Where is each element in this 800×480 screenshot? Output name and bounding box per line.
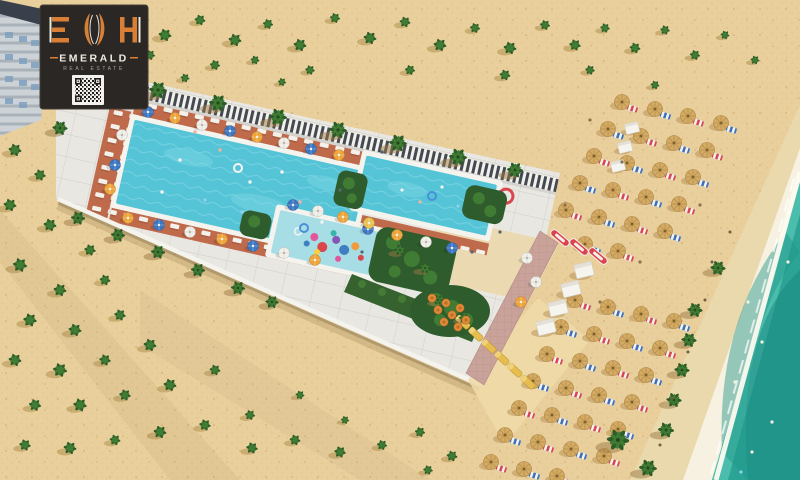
scene-canvas: EMERALD REAL ESTATE [0, 0, 800, 480]
person [770, 420, 773, 423]
brand-name: EMERALD [59, 53, 128, 65]
qr-code-icon [72, 75, 104, 105]
person [698, 203, 701, 206]
person [786, 260, 789, 263]
person [320, 220, 323, 223]
dining-table [448, 311, 456, 319]
brand-subtitle: REAL ESTATE [63, 66, 125, 72]
brand-dash-right [130, 57, 138, 59]
resort-aerial-render: EMERALD REAL ESTATE [0, 0, 800, 480]
person [733, 380, 736, 383]
person [746, 300, 749, 303]
person [711, 261, 714, 264]
person [498, 230, 501, 233]
person [470, 250, 473, 253]
person [456, 204, 459, 207]
person [638, 260, 641, 263]
person [160, 190, 163, 193]
person [659, 444, 662, 447]
dining-table [456, 304, 464, 312]
person [598, 300, 601, 303]
dining-table [454, 323, 462, 331]
person [729, 231, 732, 234]
dining-table [428, 294, 436, 302]
dining-table [440, 318, 448, 326]
person [400, 188, 403, 191]
dining-table [434, 306, 442, 314]
person [440, 185, 443, 188]
person [620, 160, 623, 163]
person [203, 198, 206, 201]
person [280, 170, 283, 173]
person [760, 340, 763, 343]
person [750, 450, 753, 453]
person [298, 200, 301, 203]
person [178, 158, 181, 161]
dining-table [462, 316, 470, 324]
person [380, 150, 383, 153]
person [360, 250, 363, 253]
person [563, 203, 566, 206]
brand-dash-left [50, 57, 58, 59]
person [704, 299, 707, 302]
person [418, 200, 421, 203]
dining-table [442, 299, 450, 307]
person [193, 130, 196, 133]
person [739, 470, 742, 473]
person [671, 397, 674, 400]
person [240, 210, 243, 213]
emerald-logo-card: EMERALD REAL ESTATE [40, 5, 148, 109]
person [218, 148, 221, 151]
person [588, 118, 591, 121]
person [687, 351, 690, 354]
person [338, 188, 341, 191]
person [248, 180, 251, 183]
